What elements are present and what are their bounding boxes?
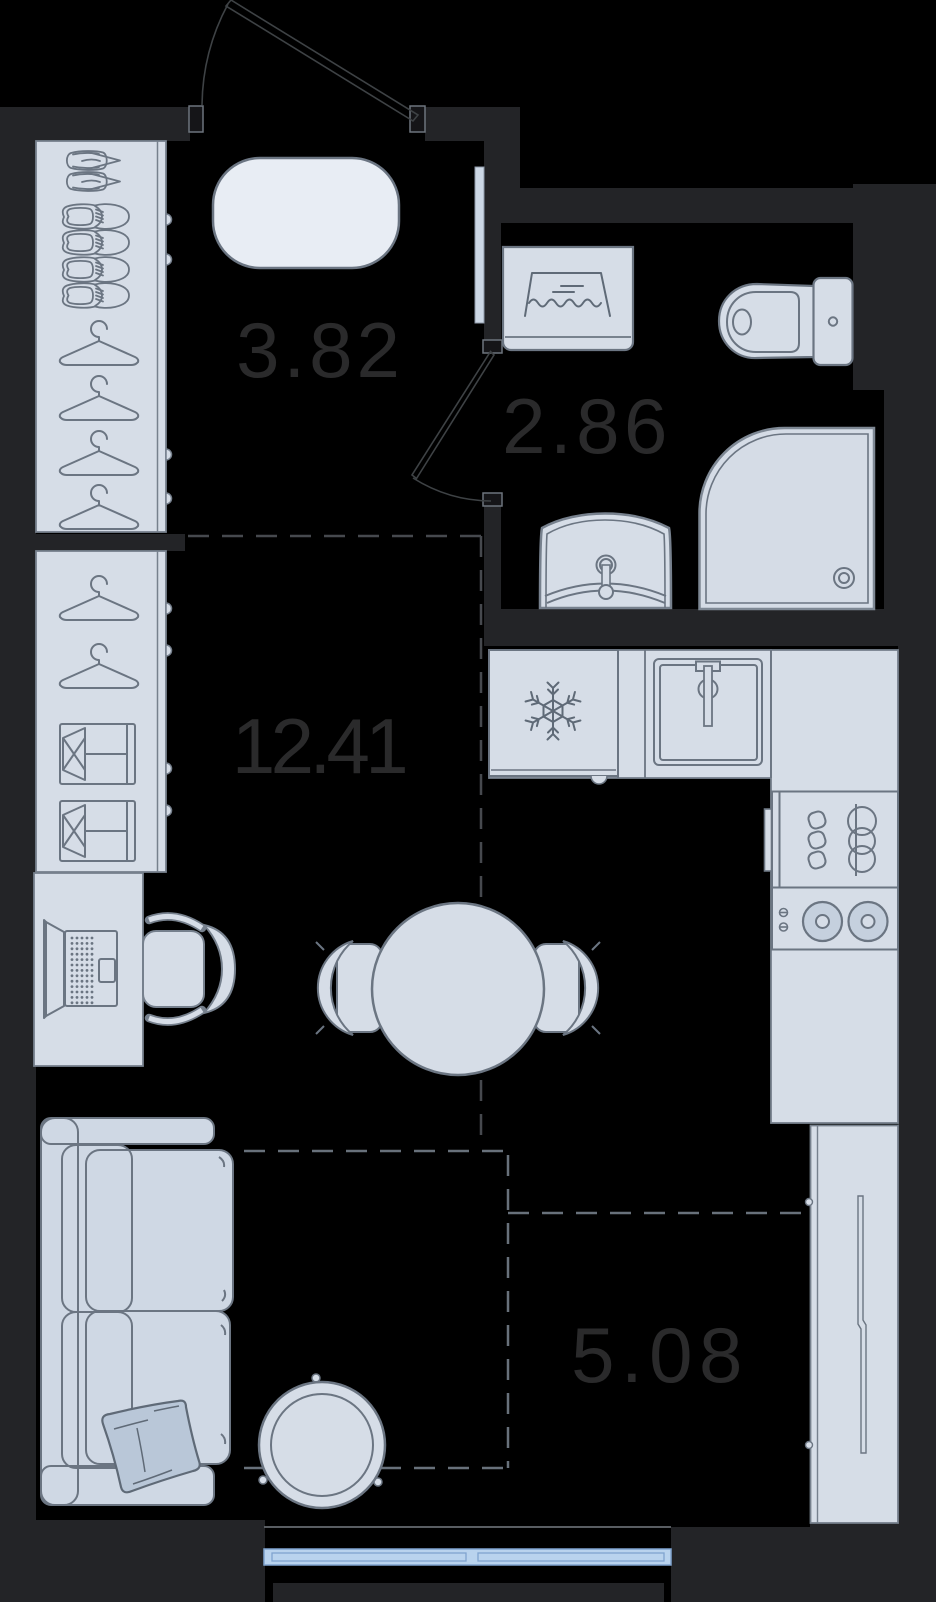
svg-text:2.86: 2.86 — [502, 382, 672, 470]
svg-text:3.82: 3.82 — [236, 306, 404, 394]
svg-text:12.41: 12.41 — [232, 702, 405, 790]
svg-text:5.08: 5.08 — [571, 1311, 749, 1399]
